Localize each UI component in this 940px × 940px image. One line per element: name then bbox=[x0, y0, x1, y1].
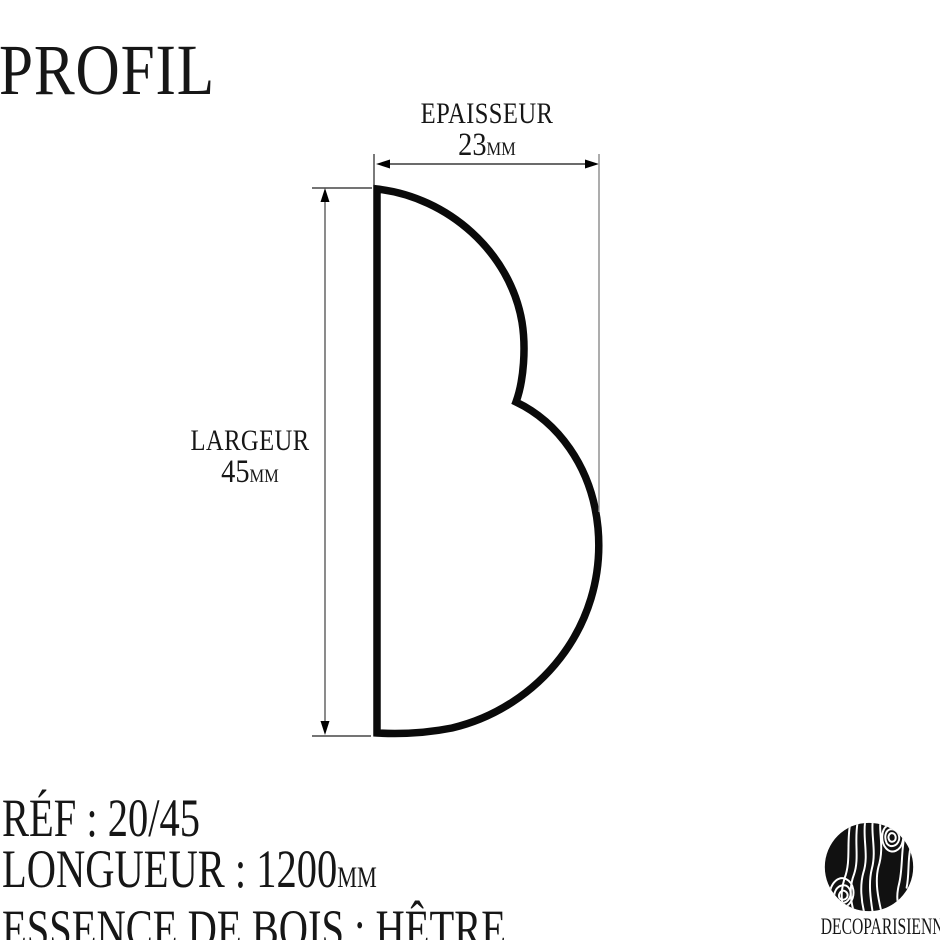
specs-block: RÉF : 20/45 LONGUEUR : 1200MM ESSENCE DE… bbox=[2, 793, 506, 940]
width-value: 45MM bbox=[164, 456, 336, 493]
thickness-dimension-label: EPAISSEUR 23MM bbox=[376, 99, 598, 166]
spec-essence-label: ESSENCE DE BOIS bbox=[2, 899, 344, 940]
brand-logo: DECOPARISIENNE bbox=[798, 820, 940, 939]
thickness-unit: MM bbox=[487, 139, 516, 160]
spec-separator: : bbox=[344, 899, 376, 940]
thickness-value: 23MM bbox=[392, 129, 583, 166]
page: PROFIL EPAISSEUR 23MM LARGEUR 45MM RÉF :… bbox=[0, 0, 940, 940]
width-dimension-label: LARGEUR 45MM bbox=[150, 426, 350, 493]
spec-longueur-label: LONGUEUR bbox=[2, 839, 225, 899]
spec-longueur-unit: MM bbox=[337, 862, 377, 894]
width-unit: MM bbox=[250, 466, 279, 487]
spec-line-ref: RÉF : 20/45 bbox=[2, 793, 506, 844]
spec-separator: : bbox=[225, 839, 257, 899]
wood-grain-icon bbox=[822, 820, 916, 914]
spec-longueur-value: 1200 bbox=[256, 839, 337, 899]
width-arrow-up-icon bbox=[321, 188, 330, 202]
spec-line-essence: ESSENCE DE BOIS : HÊTRE bbox=[2, 904, 506, 940]
brand-wordmark: DECOPARISIENNE bbox=[821, 915, 918, 939]
thickness-label-text: EPAISSEUR bbox=[396, 99, 578, 129]
width-label-text: LARGEUR bbox=[168, 426, 332, 456]
spec-essence-value: HÊTRE bbox=[376, 899, 506, 940]
spec-line-longueur: LONGUEUR : 1200MM bbox=[2, 844, 506, 904]
profile-outline bbox=[377, 189, 599, 733]
width-arrow-down-icon bbox=[321, 721, 330, 735]
